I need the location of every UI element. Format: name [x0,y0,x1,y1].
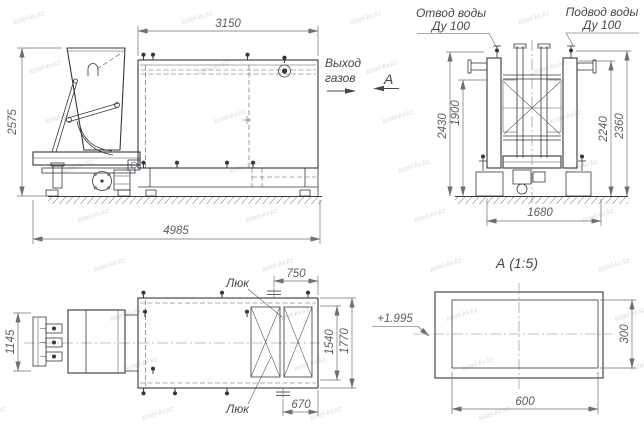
dim-1900: 1900 [450,100,462,126]
water-supply-line2: Ду 100 [581,18,621,32]
water-drain-line2: Ду 100 [430,19,470,33]
gas-outlet-line2: газов [325,71,356,85]
detail-a-title: А (1:5) [495,255,538,271]
ground-side [48,197,322,205]
dim-2360: 2360 [614,113,626,140]
dim-2575: 2575 [7,109,19,136]
view-a-letter: А [383,71,393,87]
water-drain-line1: Отвод воды [416,6,486,20]
gas-outlet-line1: Выход [325,56,361,70]
water-supply-line1: Подвод воды [566,5,639,19]
dim-1770: 1770 [339,328,351,354]
dim-3150: 3150 [215,18,241,30]
dim-1680: 1680 [527,207,553,219]
dim-670: 670 [291,399,311,411]
hatch-top-text: Люк [225,276,250,290]
dim-2430: 2430 [437,113,449,140]
dim-4985: 4985 [163,225,189,237]
technical-drawing: kotel-kv.kz [0,0,644,430]
hatch-bottom-text: Люк [225,402,250,416]
ground-end [455,197,628,205]
dim-300: 300 [619,324,631,344]
dim-1540: 1540 [324,329,336,355]
dim-2240: 2240 [598,116,610,143]
dim-1145: 1145 [5,329,17,354]
dim-600: 600 [515,396,535,408]
elevation-text: +1.995 [377,313,413,325]
dim-750: 750 [286,268,306,280]
